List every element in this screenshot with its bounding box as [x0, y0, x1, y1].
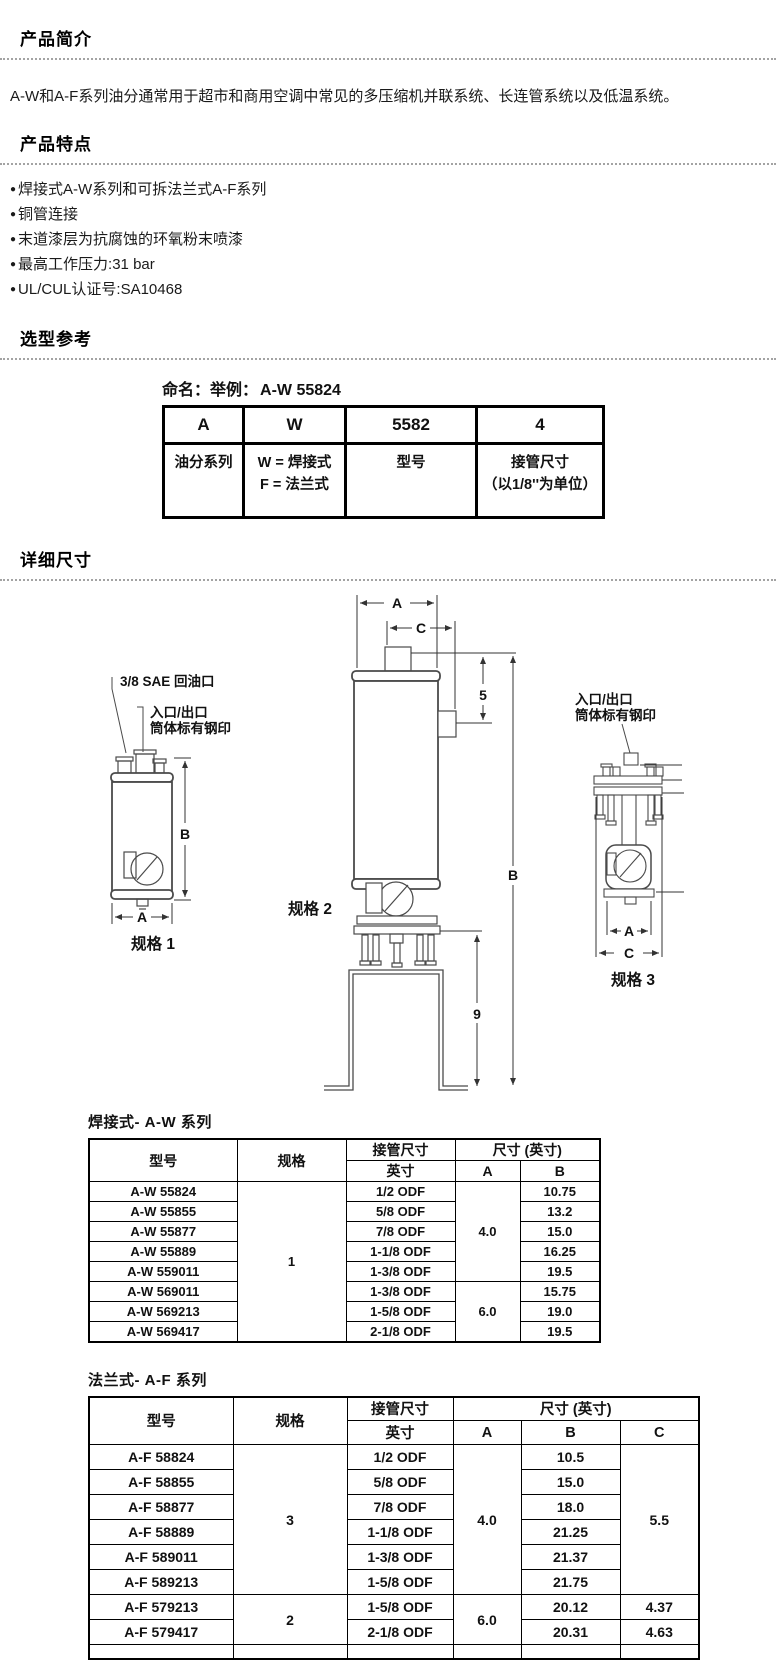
bullet-icon: ● [10, 259, 16, 270]
feature-text: 焊接式A-W系列和可拆法兰式A-F系列 [18, 181, 266, 198]
b-cell: 10.5 [521, 1445, 620, 1470]
table-row: A-F 588555/8 ODF15.0 [89, 1470, 699, 1495]
spec3-caption: 规格 3 [611, 970, 655, 989]
conn-cell: 1-1/8 ODF [346, 1242, 455, 1262]
conn-cell: 1-1/8 ODF [347, 1520, 453, 1545]
spec-cell: 3 [233, 1445, 347, 1595]
spec-cell: 1 [237, 1182, 346, 1342]
model-cell: A-F 58824 [89, 1445, 233, 1470]
conn-cell: 2-1/8 ODF [347, 1620, 453, 1645]
conn-cell: 1/2 ODF [347, 1445, 453, 1470]
b-cell: 21.75 [521, 1570, 620, 1595]
table-row: A-F 5892131-5/8 ODF21.75 [89, 1570, 699, 1595]
b-cell: 10.75 [520, 1182, 600, 1202]
a-cell [453, 1645, 521, 1659]
af-col-inch: 英寸 [347, 1421, 453, 1445]
af-col-A: A [453, 1421, 521, 1445]
callout-stamped-3: 筒体标有钢印 [575, 707, 656, 723]
aw-table: 型号 规格 接管尺寸 尺寸 (英寸) 英寸 A B A-W 55824 1 1/… [88, 1138, 601, 1343]
b-cell: 16.25 [520, 1242, 600, 1262]
vessel-spec2: A C 5 [288, 595, 518, 1090]
feature-item: ●UL/CUL认证号:SA10468 [10, 277, 776, 302]
model-cell [89, 1645, 233, 1659]
b-cell: 19.5 [520, 1322, 600, 1342]
b-cell: 19.0 [520, 1302, 600, 1322]
dim-label-A-spec3: A [624, 923, 634, 939]
conn-cell: 1-3/8 ODF [346, 1262, 455, 1282]
aw-col-B: B [520, 1161, 600, 1182]
section-header-intro: 产品简介 [0, 22, 776, 60]
model-cell: A-F 589011 [89, 1545, 233, 1570]
conn-cell [347, 1645, 453, 1659]
model-cell: A-W 55824 [89, 1182, 237, 1202]
af-col-model: 型号 [89, 1397, 233, 1445]
table-row: A-F 579417 2-1/8 ODF 20.31 4.63 [89, 1620, 699, 1645]
aw-col-dims: 尺寸 (英寸) [455, 1139, 600, 1161]
a-cell: 4.0 [455, 1182, 520, 1282]
model-cell: A-F 58877 [89, 1495, 233, 1520]
naming-table: A W 5582 4 油分系列 W = 焊接式F = 法兰式 型号 接管尺寸（以… [162, 405, 605, 519]
naming-code-row: A W 5582 4 [164, 407, 604, 444]
bullet-icon: ● [10, 209, 16, 220]
aw-col-inch: 英寸 [346, 1161, 455, 1182]
model-cell: A-W 55877 [89, 1222, 237, 1242]
af-table-section: 法兰式- A-F 系列 型号 规格 接管尺寸 尺寸 (英寸) 英寸 A B C [88, 1369, 776, 1660]
spec2-caption: 规格 2 [288, 899, 332, 918]
model-cell: A-W 559011 [89, 1262, 237, 1282]
af-table: 型号 规格 接管尺寸 尺寸 (英寸) 英寸 A B C A-F 58824 3 … [88, 1396, 700, 1660]
feature-item: ●铜管连接 [10, 202, 776, 227]
conn-cell: 1-3/8 ODF [347, 1545, 453, 1570]
vessel-spec3: 入口/出口 筒体标有钢印 [575, 691, 684, 989]
conn-cell: 1-5/8 ODF [347, 1595, 453, 1620]
b-cell: 15.0 [520, 1222, 600, 1242]
callout-stamped-1: 筒体标有钢印 [150, 720, 231, 736]
conn-cell: 1-3/8 ODF [346, 1282, 455, 1302]
feature-text: 最高工作压力:31 bar [18, 256, 155, 273]
af-col-dims: 尺寸 (英寸) [453, 1397, 699, 1421]
b-cell [521, 1645, 620, 1659]
af-col-conn: 接管尺寸 [347, 1397, 453, 1421]
table-row: A-W 55824 1 1/2 ODF 4.0 10.75 [89, 1182, 600, 1202]
model-cell: A-F 579213 [89, 1595, 233, 1620]
model-cell: A-F 579417 [89, 1620, 233, 1645]
feature-item: ●末道漆层为抗腐蚀的环氧粉末喷漆 [10, 227, 776, 252]
a-cell: 6.0 [453, 1595, 521, 1645]
af-table-caption: 法兰式- A-F 系列 [88, 1369, 776, 1390]
feature-text: 末道漆层为抗腐蚀的环氧粉末喷漆 [18, 231, 243, 248]
naming-caption-label: 命名：举例： [162, 382, 258, 399]
naming-caption-example: A-W 55824 [260, 382, 341, 399]
datasheet-page: 产品简介 A-W和A-F系列油分通常用于超市和商用空调中常见的多压缩机并联系统、… [0, 22, 776, 1660]
b-cell: 15.0 [521, 1470, 620, 1495]
dim-label-B-spec1: B [180, 826, 190, 842]
features-list: ●焊接式A-W系列和可拆法兰式A-F系列 ●铜管连接 ●末道漆层为抗腐蚀的环氧粉… [10, 177, 776, 302]
conn-cell: 1/2 ODF [346, 1182, 455, 1202]
conn-cell: 1-5/8 ODF [347, 1570, 453, 1595]
section-header-dimensions: 详细尺寸 [0, 543, 776, 581]
naming-code-cell: A [164, 407, 244, 444]
naming-desc-cell: 接管尺寸（以1/8''为单位） [477, 444, 604, 518]
dim-label-5: 5 [479, 687, 487, 703]
vessel-spec1: 3/8 SAE 回油口 入口/出口 筒体标有钢印 B [111, 673, 231, 953]
b-cell: 15.75 [520, 1282, 600, 1302]
naming-desc-cell: 油分系列 [164, 444, 244, 518]
feature-text: 铜管连接 [18, 206, 78, 223]
a-cell: 6.0 [455, 1282, 520, 1342]
intro-paragraph: A-W和A-F系列油分通常用于超市和商用空调中常见的多压缩机并联系统、长连管系统… [10, 86, 766, 107]
spec1-caption: 规格 1 [131, 934, 175, 953]
naming-caption: 命名：举例：A-W 55824 [162, 376, 604, 400]
af-col-B: B [521, 1421, 620, 1445]
dim-label-A-spec1: A [137, 909, 147, 925]
spec-cell: 2 [233, 1595, 347, 1645]
b-cell: 19.5 [520, 1262, 600, 1282]
aw-col-conn: 接管尺寸 [346, 1139, 455, 1161]
table-row-partial [89, 1645, 699, 1659]
model-cell: A-F 589213 [89, 1570, 233, 1595]
model-cell: A-W 569213 [89, 1302, 237, 1322]
table-row: A-F 58824 3 1/2 ODF 4.0 10.5 5.5 [89, 1445, 699, 1470]
table-row: A-F 5890111-3/8 ODF21.37 [89, 1545, 699, 1570]
dim-label-C-spec3: C [624, 945, 634, 961]
naming-desc-cell: 型号 [346, 444, 477, 518]
naming-example-block: 命名：举例：A-W 55824 A W 5582 4 油分系列 W = 焊接式F… [162, 376, 604, 519]
conn-cell: 5/8 ODF [347, 1470, 453, 1495]
b-cell: 21.37 [521, 1545, 620, 1570]
c-cell: 5.5 [620, 1445, 699, 1595]
model-cell: A-W 569417 [89, 1322, 237, 1342]
af-col-spec: 规格 [233, 1397, 347, 1445]
a-cell: 4.0 [453, 1445, 521, 1595]
aw-col-spec: 规格 [237, 1139, 346, 1182]
conn-cell: 7/8 ODF [346, 1222, 455, 1242]
c-cell [620, 1645, 699, 1659]
feature-text: UL/CUL认证号:SA10468 [18, 281, 182, 298]
aw-table-caption: 焊接式- A-W 系列 [88, 1111, 776, 1132]
c-cell: 4.37 [620, 1595, 699, 1620]
model-cell: A-F 58855 [89, 1470, 233, 1495]
feature-item: ●最高工作压力:31 bar [10, 252, 776, 277]
model-cell: A-W 569011 [89, 1282, 237, 1302]
conn-cell: 5/8 ODF [346, 1202, 455, 1222]
callout-inlet-outlet-3: 入口/出口 [575, 691, 633, 707]
technical-drawing: 3/8 SAE 回油口 入口/出口 筒体标有钢印 B [0, 583, 776, 1103]
naming-desc-row: 油分系列 W = 焊接式F = 法兰式 型号 接管尺寸（以1/8''为单位） [164, 444, 604, 518]
spec-cell [233, 1645, 347, 1659]
b-cell: 21.25 [521, 1520, 620, 1545]
naming-code-cell: 5582 [346, 407, 477, 444]
b-cell: 20.31 [521, 1620, 620, 1645]
dim-label-C-spec2: C [416, 620, 426, 636]
conn-cell: 1-5/8 ODF [346, 1302, 455, 1322]
model-cell: A-F 58889 [89, 1520, 233, 1545]
c-cell: 4.63 [620, 1620, 699, 1645]
aw-col-model: 型号 [89, 1139, 237, 1182]
callout-oil-return: 3/8 SAE 回油口 [120, 673, 215, 689]
naming-code-cell: 4 [477, 407, 604, 444]
table-row: A-F 579213 2 1-5/8 ODF 6.0 20.12 4.37 [89, 1595, 699, 1620]
model-cell: A-W 55855 [89, 1202, 237, 1222]
b-cell: 13.2 [520, 1202, 600, 1222]
section-header-selection: 选型参考 [0, 322, 776, 360]
aw-header-row: 型号 规格 接管尺寸 尺寸 (英寸) [89, 1139, 600, 1161]
dim-label-9: 9 [473, 1006, 481, 1022]
b-cell: 18.0 [521, 1495, 620, 1520]
bullet-icon: ● [10, 234, 16, 245]
naming-code-cell: W [244, 407, 346, 444]
conn-cell: 2-1/8 ODF [346, 1322, 455, 1342]
af-header-row: 型号 规格 接管尺寸 尺寸 (英寸) [89, 1397, 699, 1421]
naming-desc-cell: W = 焊接式F = 法兰式 [244, 444, 346, 518]
aw-col-A: A [455, 1161, 520, 1182]
af-col-C: C [620, 1421, 699, 1445]
conn-cell: 7/8 ODF [347, 1495, 453, 1520]
model-cell: A-W 55889 [89, 1242, 237, 1262]
b-cell: 20.12 [521, 1595, 620, 1620]
table-row: A-F 588891-1/8 ODF21.25 [89, 1520, 699, 1545]
bullet-icon: ● [10, 184, 16, 195]
callout-inlet-outlet-1: 入口/出口 [150, 704, 208, 720]
aw-table-section: 焊接式- A-W 系列 型号 规格 接管尺寸 尺寸 (英寸) 英寸 A B A-… [88, 1111, 776, 1343]
dim-label-A-spec2: A [392, 595, 402, 611]
feature-item: ●焊接式A-W系列和可拆法兰式A-F系列 [10, 177, 776, 202]
table-row: A-F 588777/8 ODF18.0 [89, 1495, 699, 1520]
dim-label-B-spec2: B [508, 867, 518, 883]
section-header-features: 产品特点 [0, 127, 776, 165]
bullet-icon: ● [10, 284, 16, 295]
